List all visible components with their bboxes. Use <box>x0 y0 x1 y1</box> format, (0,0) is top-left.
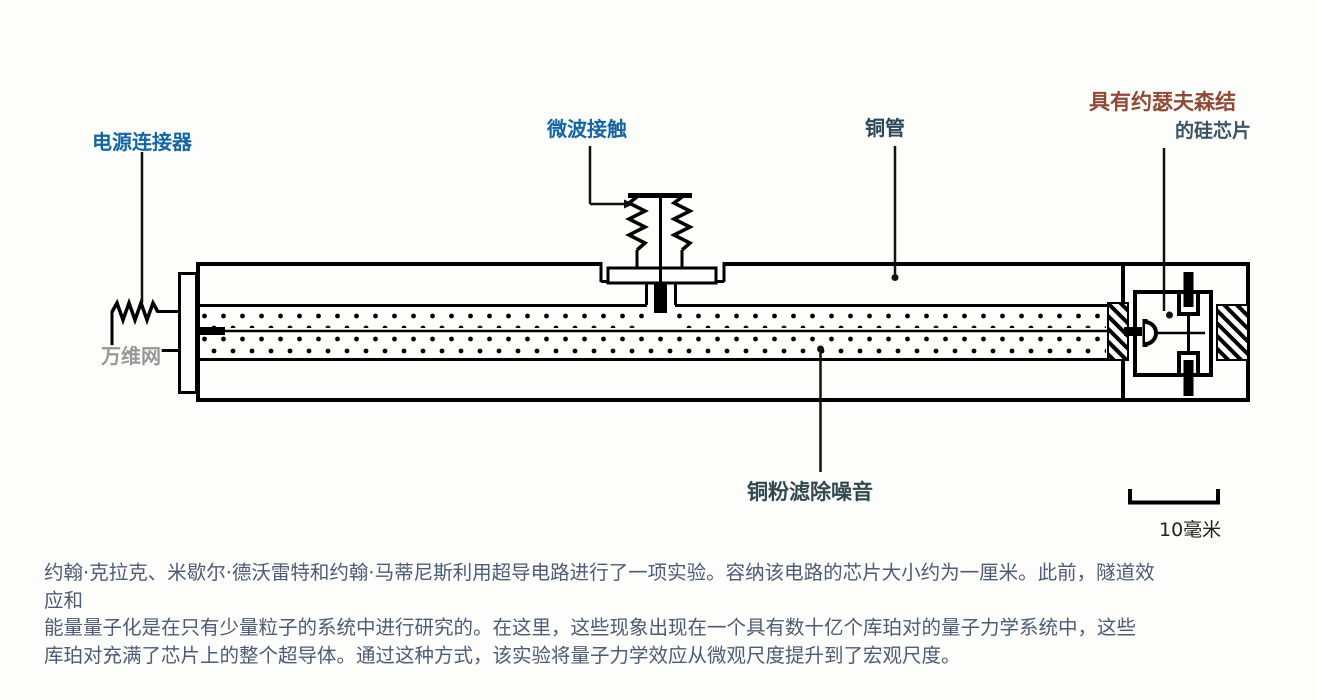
end-flange <box>180 274 197 393</box>
scale-label: 10毫米 <box>1159 515 1221 542</box>
chip-feed-bar <box>1124 327 1142 336</box>
caption-line: 约翰·克拉克、米歇尔·德沃雷特和约翰·马蒂尼斯利用超导电路进行了一项实验。容纳该… <box>44 559 1164 614</box>
microwave-contact-label: 微波接触 <box>547 113 627 142</box>
power-coil <box>112 303 158 320</box>
watermark-text: 万维网 <box>101 340 161 369</box>
d-element <box>1145 322 1156 344</box>
copper-powder-band-bottom <box>201 334 1106 357</box>
caption-line: 库珀对充满了芯片上的整个超导体。通过这种方式，该实验将量子力学效应从微观尺度提升… <box>44 642 1164 670</box>
copper-tube-label: 铜管 <box>865 112 905 141</box>
scale-bar <box>1130 489 1218 503</box>
figure-superconducting-circuit: 电源连接器 微波接触 铜管 具有约瑟夫森结 的硅芯片 万维网 铜粉滤除噪音 10… <box>0 0 1317 700</box>
josephson-chip-label-line1: 具有约瑟夫森结 <box>1089 86 1236 116</box>
tube-top-notch <box>601 257 724 267</box>
copper-tube-outline <box>198 257 1248 400</box>
power-connector-label: 电源连接器 <box>92 126 192 155</box>
thread-right <box>674 197 690 250</box>
hatch-block-right <box>1217 305 1248 360</box>
power-feed <box>112 274 197 393</box>
caption-line: 能量量子化是在只有少量粒子的系统中进行研究的。在这里，这些现象出现在一个具有数十… <box>44 614 1164 642</box>
copper-powder-label: 铜粉滤除噪音 <box>747 476 873 506</box>
caption-paragraph: 约翰·克拉克、米歇尔·德沃雷特和约翰·马蒂尼斯利用超导电路进行了一项实验。容纳该… <box>44 559 1164 669</box>
chip-assembly <box>1108 272 1248 396</box>
josephson-chip-label-line2: 的硅芯片 <box>1175 116 1251 143</box>
connector-pin <box>654 283 667 313</box>
center-conductor-stub <box>199 327 225 335</box>
